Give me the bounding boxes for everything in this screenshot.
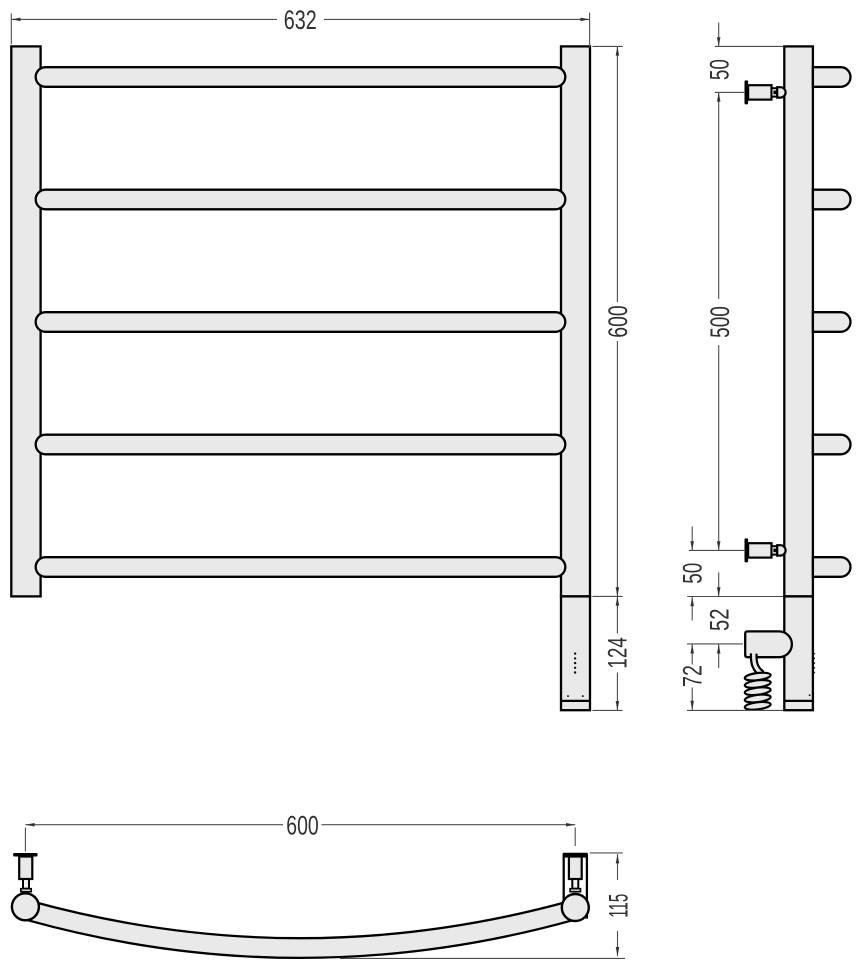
svg-text:52: 52: [704, 609, 734, 632]
svg-text:50: 50: [704, 59, 734, 80]
svg-text:115: 115: [603, 894, 633, 918]
svg-text:500: 500: [705, 306, 735, 338]
svg-text:72: 72: [678, 665, 708, 687]
svg-text:50: 50: [678, 563, 708, 584]
svg-text:600: 600: [603, 305, 633, 337]
svg-text:600: 600: [286, 810, 318, 840]
svg-text:632: 632: [284, 5, 317, 35]
svg-text:124: 124: [602, 637, 632, 668]
